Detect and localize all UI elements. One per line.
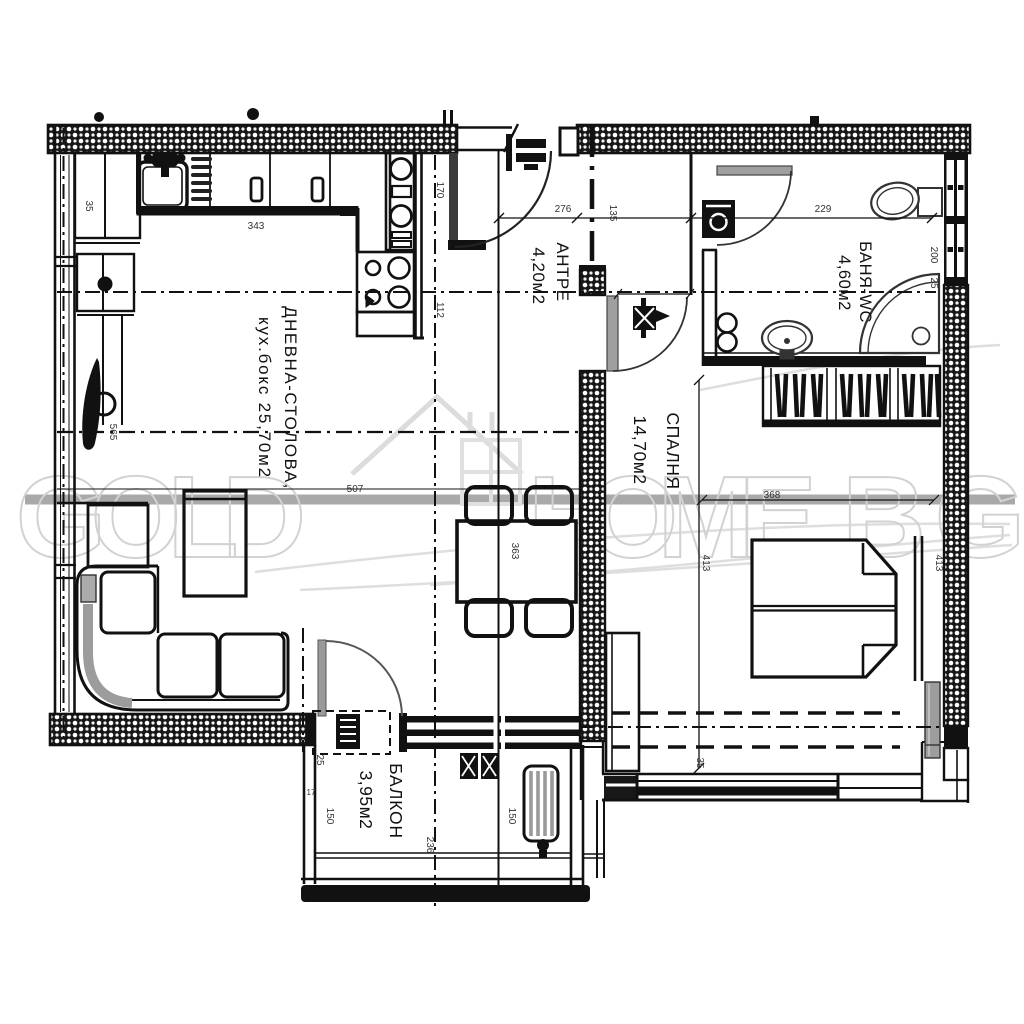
- svg-text:413: 413: [933, 555, 944, 572]
- svg-text:БАЛКОН: БАЛКОН: [386, 763, 406, 839]
- svg-text:200: 200: [928, 247, 939, 264]
- svg-text:150: 150: [506, 808, 517, 825]
- svg-text:4,20м2: 4,20м2: [529, 247, 548, 304]
- svg-text:3,95м2: 3,95м2: [356, 771, 376, 830]
- svg-text:170: 170: [434, 182, 445, 199]
- svg-text:кух.бокс 25,70м2: кух.бокс 25,70м2: [255, 317, 274, 479]
- svg-text:АНТРЕ: АНТРЕ: [553, 242, 572, 301]
- svg-text:368: 368: [764, 490, 781, 501]
- svg-text:25: 25: [928, 277, 939, 289]
- svg-text:ДНЕВНА-СТОЛОВА,: ДНЕВНА-СТОЛОВА,: [281, 306, 300, 490]
- svg-text:565: 565: [107, 424, 118, 441]
- svg-text:343: 343: [248, 221, 265, 232]
- svg-text:276: 276: [555, 204, 572, 215]
- svg-text:14,70м2: 14,70м2: [630, 415, 650, 484]
- svg-text:25: 25: [314, 754, 325, 766]
- svg-text:363: 363: [509, 543, 520, 560]
- svg-text:150: 150: [324, 808, 335, 825]
- svg-text:135: 135: [607, 205, 618, 222]
- svg-text:507: 507: [347, 484, 364, 495]
- svg-text:413: 413: [700, 555, 711, 572]
- svg-text:БАНЯ-WC: БАНЯ-WC: [856, 241, 874, 323]
- svg-text:236: 236: [424, 837, 435, 854]
- svg-text:35: 35: [694, 757, 705, 769]
- svg-text:СПАЛНЯ: СПАЛНЯ: [663, 412, 683, 489]
- svg-text:17: 17: [307, 788, 316, 797]
- svg-text:4,60м2: 4,60м2: [835, 255, 853, 311]
- svg-text:229: 229: [815, 204, 832, 215]
- svg-text:35: 35: [83, 200, 94, 212]
- svg-text:112: 112: [434, 302, 445, 318]
